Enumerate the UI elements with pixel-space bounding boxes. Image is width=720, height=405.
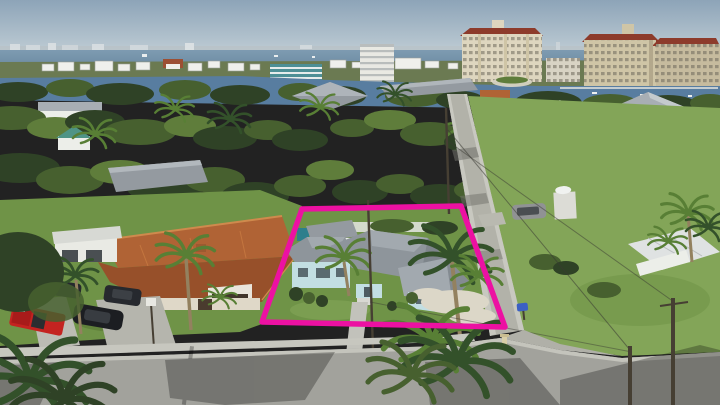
pole-bottom-2 — [671, 298, 675, 405]
cream-condo-tower — [460, 20, 543, 82]
mid-building-windows — [546, 58, 580, 82]
aerial-photo — [0, 0, 720, 405]
white-condo-tower — [360, 44, 394, 84]
lawn-shade-right — [570, 274, 710, 326]
white-garage-wing — [52, 226, 122, 262]
pole-bottom-1 — [628, 346, 632, 405]
gray-minivan — [512, 203, 547, 220]
